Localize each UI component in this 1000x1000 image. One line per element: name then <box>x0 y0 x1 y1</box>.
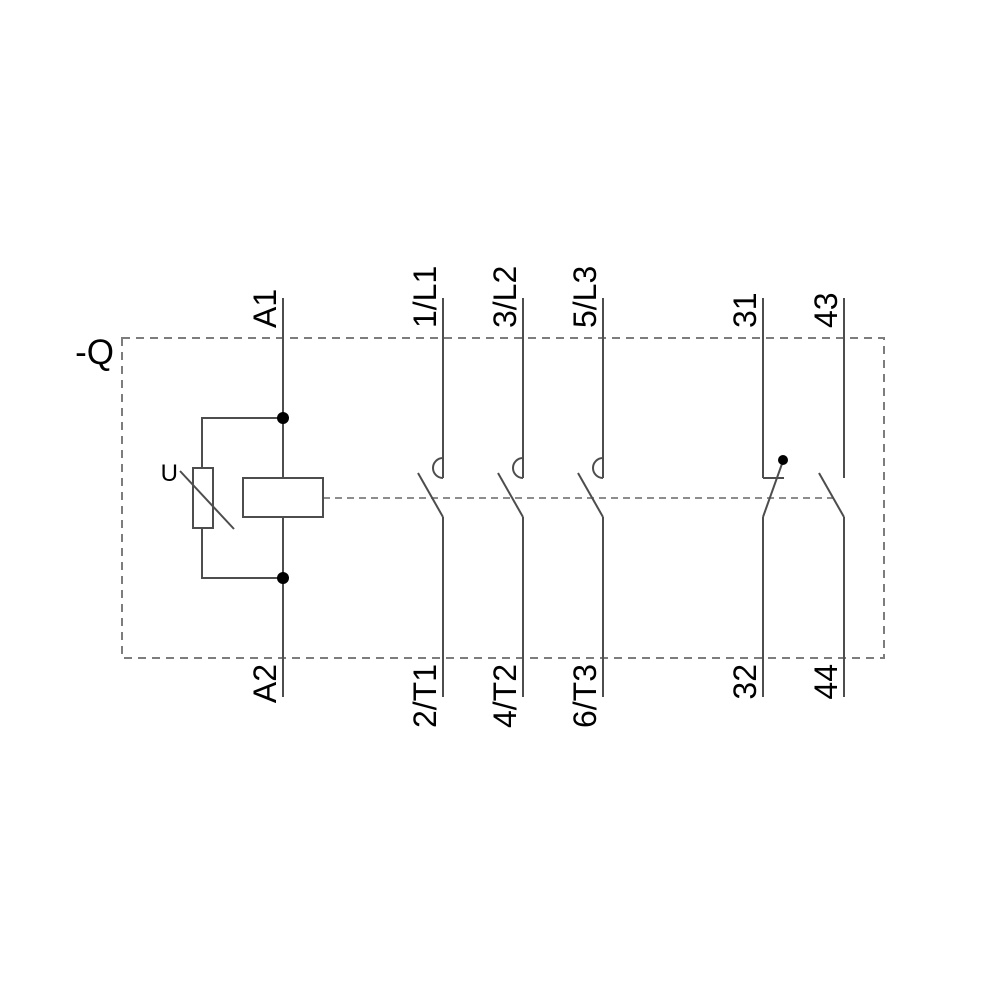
junction-dot-bottom <box>277 572 289 584</box>
terminal-label-43: 43 <box>808 292 844 328</box>
coil-symbol <box>243 478 323 517</box>
contactor-wiring-diagram: -Q U A1 1/L1 3/L2 5/L3 31 43 A2 2/T1 4/T… <box>0 0 1000 1000</box>
terminal-label-2t1: 2/T1 <box>407 664 443 728</box>
junction-dot-top <box>277 412 289 424</box>
device-tag-label: -Q <box>75 333 114 372</box>
aux-no-moving-contact <box>819 473 844 517</box>
pole2-main-contact-arc <box>513 458 523 478</box>
terminal-label-5l3: 5/L3 <box>567 266 603 328</box>
contactor-schematic-page: -Q U A1 1/L1 3/L2 5/L3 31 43 A2 2/T1 4/T… <box>0 0 1000 1000</box>
pole1-moving-contact <box>418 473 443 517</box>
terminal-label-31: 31 <box>727 292 763 328</box>
terminal-label-6t3: 6/T3 <box>567 664 603 728</box>
aux-nc-contact-dot <box>778 455 788 465</box>
terminal-label-a1: A1 <box>247 289 283 328</box>
surge-suppressor-symbol <box>193 468 213 528</box>
pole1-main-contact-arc <box>433 458 443 478</box>
terminal-label-a2: A2 <box>247 664 283 703</box>
pole3-main-contact-arc <box>593 458 603 478</box>
terminal-label-44: 44 <box>808 664 844 700</box>
terminal-label-4t2: 4/T2 <box>487 664 523 728</box>
aux-nc-moving-contact <box>763 461 783 517</box>
pole2-moving-contact <box>498 473 523 517</box>
terminal-label-3l2: 3/L2 <box>487 266 523 328</box>
suppressor-u-label: U <box>161 460 178 487</box>
coil-circuit <box>180 298 323 697</box>
pole3-moving-contact <box>578 473 603 517</box>
terminal-label-32: 32 <box>727 664 763 700</box>
terminal-label-1l1: 1/L1 <box>407 266 443 328</box>
